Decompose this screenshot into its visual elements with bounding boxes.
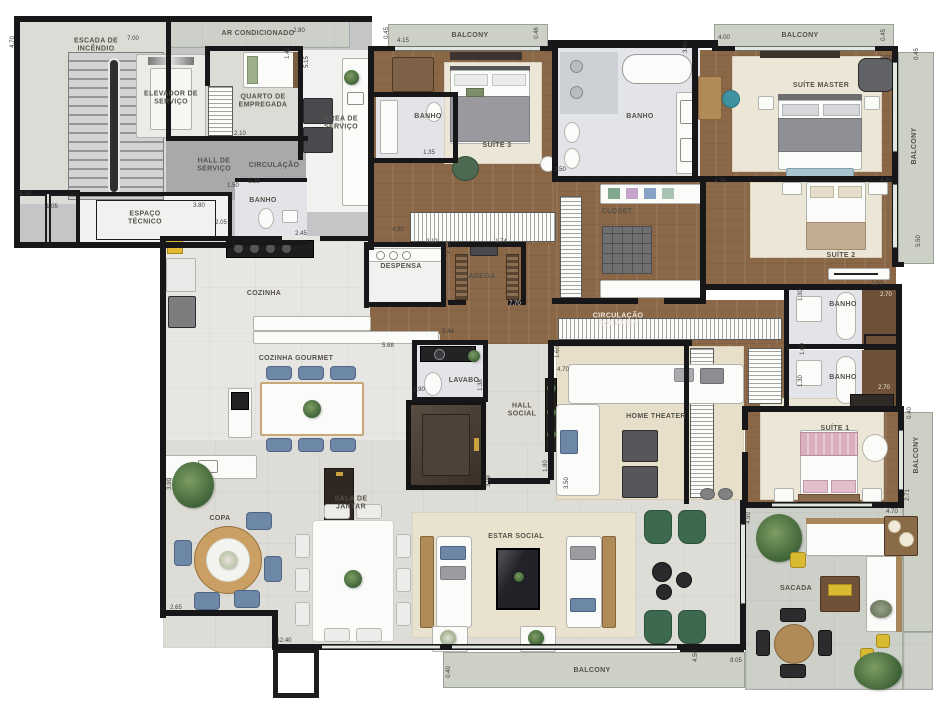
dimension-label: 2.50 (871, 281, 883, 287)
closet-rack-left (560, 196, 582, 298)
wall (552, 340, 692, 346)
armchair-green-4 (678, 610, 706, 644)
stair-rail (108, 58, 120, 194)
master-desk-chair (722, 90, 740, 108)
living-pillow-2 (440, 566, 466, 580)
master-nightstand-2 (864, 96, 880, 110)
wine-shelf-top (470, 246, 498, 256)
kitchen-oven-tower (168, 296, 196, 328)
dimension-label: 4.30 (392, 227, 404, 233)
copa-chair-2 (246, 512, 272, 530)
wall (372, 158, 458, 163)
dimension-label: 3.40 (683, 41, 689, 53)
terrace-chair-2 (818, 630, 832, 656)
wall (552, 176, 704, 182)
laundry-cabinet (392, 57, 434, 92)
dimension-label: 2.45 (295, 231, 307, 237)
dining-chair-4 (396, 534, 411, 558)
room-label-balcony-right1: BALCONY (911, 127, 919, 164)
room-label-balcony-top-right: BALCONY (781, 32, 818, 40)
wall (160, 236, 166, 618)
dimension-label: 4.40 (880, 178, 892, 184)
room-label-sacada: SACADA (780, 585, 812, 593)
room-label-copa: COPA (209, 515, 230, 523)
terrace-chair-4 (780, 664, 806, 678)
dining-chair-6 (396, 602, 411, 626)
room-label-despensa: DESPENSA (380, 263, 421, 271)
gourmet-chair-2 (298, 366, 324, 380)
kitchen-fridge (166, 258, 196, 292)
terrace-sofa-pillow (870, 600, 892, 618)
room-label-closet: CLOSET (602, 208, 633, 216)
room-label-suite3: SUÍTE 3 (483, 142, 512, 150)
master-duvet (778, 118, 862, 152)
dimension-label: 4.00 (718, 35, 730, 41)
window (735, 46, 875, 51)
wall (364, 242, 369, 308)
dimension-label: 0.40 (907, 407, 913, 419)
dimension-label: 3.99 (486, 475, 492, 487)
dimension-label: 1.90 (413, 387, 425, 393)
gourmet-chair-6 (330, 438, 356, 452)
window (322, 645, 440, 649)
dining-chair-1 (295, 534, 310, 558)
terrace-yellow-tray (828, 584, 852, 596)
dimension-label: 4.90 (746, 512, 752, 524)
closet-clothes-1 (608, 188, 620, 199)
room-label-circulacao: CIRCULAÇÃO (249, 162, 300, 170)
wine-rack-left (455, 254, 468, 300)
service-toilet (258, 208, 274, 229)
room-label-ar-condicionado: AR CONDICIONADO (222, 30, 295, 38)
room-label-circulacao-rouparia: CIRCULAÇÃO ROUPARIA (583, 313, 653, 330)
dimension-label: 3.50 (564, 477, 570, 489)
window (452, 645, 677, 649)
wall (453, 92, 458, 162)
room-label-hall-social: HALL SOCIAL (504, 403, 540, 420)
pouf-gray-1 (700, 488, 715, 500)
wall (80, 192, 230, 196)
window (893, 184, 897, 248)
wall (742, 406, 904, 412)
room-label-adega: ADEGA (468, 273, 495, 281)
pouf-yellow-1 (790, 552, 806, 568)
wall (298, 50, 303, 160)
wall (448, 242, 526, 247)
pouf-gray-2 (718, 488, 733, 500)
dimension-label: 0.45 (914, 48, 920, 60)
suite1-pillow-1 (803, 480, 828, 493)
room-label-balcony-bottom: BALCONY (573, 667, 610, 675)
suite1-duvet (800, 432, 858, 456)
laundry-plant (344, 70, 359, 85)
gourmet-chair-5 (298, 438, 324, 452)
dimension-label: 2.70 (878, 385, 890, 391)
dimension-label: 5.50 (880, 56, 892, 62)
window (893, 62, 897, 152)
dining-chair-5 (396, 568, 411, 592)
room-label-banho-servico: BANHO (249, 197, 276, 205)
service-elevator-door (148, 57, 194, 65)
powder-plant (468, 350, 480, 362)
bath2-tub (836, 292, 856, 340)
wall (205, 46, 210, 86)
closet-clothes-2 (626, 188, 638, 199)
maid-bed-pillow (247, 56, 258, 84)
dimension-label: 1.50 (227, 183, 239, 189)
wall (76, 190, 80, 248)
dimension-label: 5.50 (916, 235, 922, 247)
terrace-floor-ext (903, 632, 933, 690)
dimension-label: 5.15 (304, 56, 310, 68)
wall (892, 262, 904, 267)
hall-social-floor (486, 344, 554, 444)
ht-pillow-1 (700, 368, 724, 384)
dimension-label: 4.70 (557, 367, 569, 373)
shaft-left-1 (18, 194, 47, 244)
room-label-quarto-empregada: QUARTO DE EMPREGADA (231, 94, 295, 111)
room-label-balcony-top: BALCONY (451, 32, 488, 40)
copa-chair-5 (234, 590, 260, 608)
suite2-duvet (806, 222, 866, 250)
wall (448, 300, 466, 305)
dimension-label: 1.30 (798, 289, 804, 301)
dimension-label: 1.74 (495, 239, 507, 245)
dimension-label: 1.30 (798, 375, 804, 387)
dimension-label: 2.80 (293, 28, 305, 34)
pantry-basin-3 (402, 251, 411, 260)
copa-flowers (219, 551, 237, 569)
suite1-headboard (798, 494, 860, 502)
room-label-estar-social: ESTAR SOCIAL (488, 533, 544, 541)
wall (320, 236, 372, 241)
shaft-left-2 (49, 194, 78, 244)
dimension-label: 1.25 (248, 179, 260, 185)
copa-chair-1 (174, 540, 192, 566)
master-bathtub (622, 54, 692, 84)
suite3-cushion (466, 88, 484, 97)
suite3-pillow-2 (492, 74, 526, 86)
kitchen-counter (253, 316, 371, 331)
pantry-basin-2 (389, 251, 398, 260)
wall (14, 16, 372, 22)
room-label-suite2: SUÍTE 2 (827, 252, 856, 260)
gourmet-island-plant (303, 400, 321, 418)
wall (235, 178, 307, 182)
window (395, 46, 540, 51)
terrace-chair-1 (756, 630, 770, 656)
armchair-green-2 (678, 510, 706, 544)
dimension-label: 1.05 (46, 204, 58, 210)
master-shower-floor (560, 52, 618, 114)
wall (483, 340, 488, 402)
social-elevator-handle (474, 438, 479, 451)
dimension-label: 3.80 (193, 203, 205, 209)
dimension-label: 8.05 (730, 658, 742, 664)
burner-2 (250, 244, 259, 253)
dining-chair-10 (356, 628, 382, 642)
wall (14, 242, 234, 248)
armchair-green-3 (644, 610, 672, 644)
dimension-label: 0.45 (384, 27, 390, 39)
armchair-green-1 (644, 510, 672, 544)
suite2-pillow-2 (838, 186, 862, 198)
wall (680, 644, 744, 652)
wall (692, 46, 698, 180)
dimension-label: 4.15 (397, 38, 409, 44)
grill (231, 392, 249, 410)
gourmet-chair-1 (266, 366, 292, 380)
burner-3 (266, 244, 275, 253)
dining-chair-2 (295, 568, 310, 592)
room-label-escada: ESCADA DE INCÊNDIO (65, 38, 127, 55)
dimension-label: 2.65 (170, 605, 182, 611)
copa-chair-3 (264, 556, 282, 582)
wall (14, 16, 20, 248)
wall (364, 302, 446, 307)
room-label-suite-master: SUÍTE MASTER (793, 82, 849, 90)
dimension-label: 0.46 (534, 27, 540, 39)
living-pillow-1 (440, 546, 466, 560)
suite1-pillow-2 (831, 480, 856, 493)
pantry-basin-1 (376, 251, 385, 260)
dimension-label: 5.68 (382, 343, 394, 349)
side-table-1 (652, 562, 672, 582)
closet-clothes-4 (662, 188, 674, 199)
terrace-sofa-top-back (806, 518, 886, 524)
dimension-label: 0.45 (881, 29, 887, 41)
closet-shelf-bottom (600, 280, 702, 298)
dimension-label: 4.70 (886, 509, 898, 515)
suite2-nightstand-1 (782, 182, 802, 195)
wall (552, 40, 558, 180)
wall (160, 236, 282, 241)
dimension-label: 1.42 (285, 47, 291, 59)
suite3-duvet (450, 96, 530, 142)
terrace-tray-1 (888, 520, 901, 533)
wall (521, 242, 526, 304)
dimension-label: 3.50 (554, 167, 566, 173)
wall (488, 478, 550, 484)
copa-chair-4 (194, 592, 220, 610)
dimension-label: 1.60 (800, 343, 806, 355)
gourmet-chair-3 (330, 366, 356, 380)
pouf-yellow-2 (876, 634, 890, 648)
dimension-label: 4.30 (19, 191, 31, 197)
living-console-left (420, 536, 434, 628)
wine-rack-right (506, 254, 519, 300)
dimension-label: 2.10 (234, 131, 246, 137)
powder-toilet (424, 372, 442, 396)
master-nightstand-1 (758, 96, 774, 110)
room-label-banho-suite3: BANHO (414, 113, 441, 121)
closet-clothes-3 (644, 188, 656, 199)
master-pillow-1 (782, 104, 819, 116)
room-label-banho2: BANHO (829, 301, 856, 309)
master-bidet (564, 148, 580, 169)
bottom-shaft (273, 648, 319, 698)
master-desk (698, 76, 722, 120)
dimension-label: 4.50 (693, 650, 699, 662)
suite3-tv-console (450, 52, 522, 60)
corridor-wardrobe-2 (748, 348, 782, 404)
powder-sink (434, 349, 445, 360)
laundry-sink (347, 92, 364, 105)
room-label-banho-master: BANHO (626, 113, 653, 121)
dimension-label: 1.80 (543, 460, 549, 472)
dimension-label: 0.40 (446, 666, 452, 678)
master-armchair (858, 58, 894, 92)
room-label-espaco-tecnico: ESPAÇO TÉCNICO (121, 211, 169, 228)
wall (412, 340, 488, 345)
suite1-nightstand-1 (774, 488, 794, 502)
dimension-label: 12.40 (276, 638, 291, 644)
terrace-dining-table (774, 624, 814, 664)
room-label-lavabo: LAVABO (449, 377, 480, 385)
master-shower-head-2 (570, 86, 583, 99)
room-label-hall-servico: HALL DE SERVIÇO (190, 158, 238, 175)
ht-pillow-3 (560, 430, 578, 454)
room-label-area-servico: ÁREA DE SERVIÇO (318, 116, 364, 133)
room-label-home-theater: HOME THEATER (626, 413, 686, 421)
burner-1 (234, 244, 243, 253)
dimension-label: 7.00 (127, 36, 139, 42)
wall (368, 46, 374, 250)
dimension-label: 9.44 (442, 329, 454, 335)
ht-ottoman-2 (622, 466, 658, 498)
dimension-label: 4.70 (10, 36, 16, 48)
master-tv-console (760, 50, 840, 58)
dining-chair-3 (295, 602, 310, 626)
dimension-label: 1.60 (555, 346, 561, 358)
floor-plan: ESCADA DE INCÊNDIO ELEVADOR DE SERVIÇO A… (0, 0, 951, 720)
wall (664, 298, 706, 304)
suite3-pillow-1 (454, 74, 488, 86)
wall (166, 20, 171, 140)
room-label-elevador-servico: ELEVADOR DE SERVIÇO (140, 91, 202, 108)
dining-centerpiece (344, 570, 362, 588)
dimension-label: 2.71 (905, 489, 911, 501)
suite1-nightstand-2 (862, 488, 882, 502)
window (741, 524, 745, 604)
master-toilet (564, 122, 580, 143)
social-elevator-cab (422, 414, 470, 476)
closet-island (602, 226, 652, 274)
terrace-tray-2 (899, 532, 914, 547)
window (772, 503, 872, 507)
suite2-sideboard-detail (834, 273, 878, 275)
room-label-cozinha: COZINHA (247, 290, 281, 298)
dimension-label: 3.90 (167, 478, 173, 490)
master-pillow-2 (823, 104, 860, 116)
side-table-2 (676, 572, 692, 588)
living-pillow-3 (570, 546, 596, 560)
dimension-label: 2.05 (215, 220, 227, 226)
ht-ottoman-1 (622, 430, 658, 462)
copa-plant (172, 462, 214, 508)
dimension-label: 2.12 (426, 239, 438, 245)
gourmet-chair-4 (266, 438, 292, 452)
wall (742, 412, 748, 430)
dimension-label: 7.70 (509, 301, 521, 307)
suite2-pillow-1 (810, 186, 834, 198)
coffee-table-plant (514, 572, 524, 582)
dimension-label: 1.35 (423, 150, 435, 156)
dimension-label: 2.70 (880, 292, 892, 298)
dimension-label: 2.10 (446, 242, 452, 254)
dining-chair-9 (324, 628, 350, 642)
terrace-plant-2 (854, 652, 902, 690)
wall (896, 284, 902, 412)
suite3-wardrobe (410, 212, 556, 242)
wall (684, 344, 689, 504)
dimension-label: 4.75 (714, 179, 726, 185)
window (899, 430, 903, 490)
service-sink (282, 210, 298, 223)
dimension-label: 1.38 (478, 379, 484, 391)
room-label-sala-jantar: SALA DE JANTAR (327, 496, 375, 513)
wall (372, 92, 458, 97)
terrace-sofa-right-back (896, 556, 902, 632)
wall (552, 298, 638, 304)
room-label-banho1: BANHO (829, 374, 856, 382)
room-label-balcony-right2: BALCONY (913, 436, 921, 473)
master-shower-head-1 (570, 60, 583, 73)
living-pillow-4 (570, 598, 596, 612)
suite3-vanity (380, 100, 398, 154)
living-console-right (602, 536, 616, 628)
side-table-3 (656, 584, 672, 600)
maid-wardrobe (208, 86, 233, 136)
room-label-cozinha-gourmet: COZINHA GOURMET (259, 355, 334, 363)
terrace-chair-3 (780, 608, 806, 622)
burner-4 (282, 244, 291, 253)
bar-cabinet-handle (336, 472, 343, 476)
suite1-armchair (862, 434, 888, 462)
room-label-suite1: SUÍTE 1 (821, 425, 850, 433)
wall (412, 397, 488, 402)
